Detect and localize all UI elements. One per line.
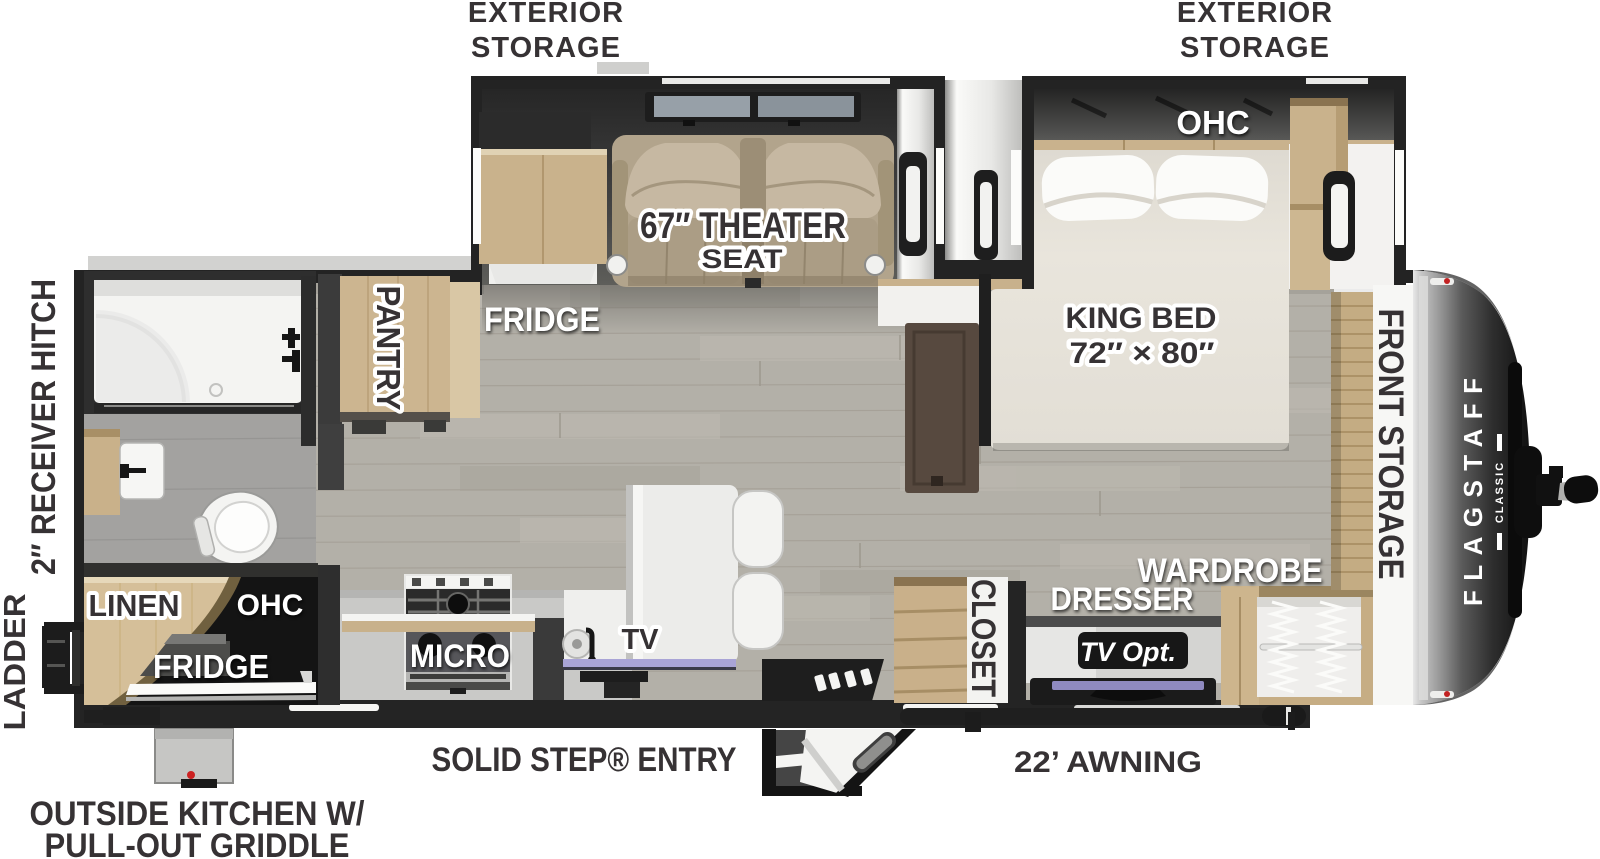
svg-text:FRONT STORAGE: FRONT STORAGE — [1371, 309, 1410, 580]
svg-text:STORAGE: STORAGE — [1180, 32, 1330, 64]
svg-text:FLAGSTAFF: FLAGSTAFF — [1458, 378, 1488, 606]
svg-text:STORAGE: STORAGE — [471, 32, 621, 64]
svg-text:SOLID STEP® ENTRY: SOLID STEP® ENTRY — [432, 741, 737, 779]
svg-text:KING BED: KING BED — [1066, 302, 1217, 335]
svg-text:PULL-OUT GRIDDLE: PULL-OUT GRIDDLE — [45, 827, 350, 859]
svg-text:67″ THEATER: 67″ THEATER — [640, 205, 846, 246]
svg-text:PANTRY: PANTRY — [370, 286, 407, 411]
svg-text:LADDER: LADDER — [0, 594, 32, 731]
svg-text:2″ RECEIVER HITCH: 2″ RECEIVER HITCH — [25, 279, 63, 575]
svg-text:MICRO: MICRO — [410, 638, 510, 674]
svg-text:FRIDGE: FRIDGE — [153, 648, 269, 685]
svg-text:OHC: OHC — [237, 589, 304, 622]
svg-text:EXTERIOR: EXTERIOR — [1177, 0, 1333, 29]
svg-text:LINEN: LINEN — [89, 588, 180, 623]
svg-text:OHC: OHC — [1176, 104, 1249, 141]
svg-text:72″ × 80″: 72″ × 80″ — [1070, 337, 1215, 370]
svg-text:22’ AWNING: 22’ AWNING — [1014, 746, 1202, 779]
svg-text:SEAT: SEAT — [702, 244, 784, 274]
svg-text:CLOSET: CLOSET — [964, 579, 1002, 697]
svg-text:TV: TV — [621, 624, 659, 656]
svg-text:EXTERIOR: EXTERIOR — [468, 0, 624, 29]
svg-text:TV Opt.: TV Opt. — [1080, 637, 1176, 667]
svg-text:DRESSER: DRESSER — [1051, 581, 1194, 617]
svg-text:CLASSIC: CLASSIC — [1494, 461, 1506, 523]
svg-text:FRIDGE: FRIDGE — [484, 301, 600, 339]
